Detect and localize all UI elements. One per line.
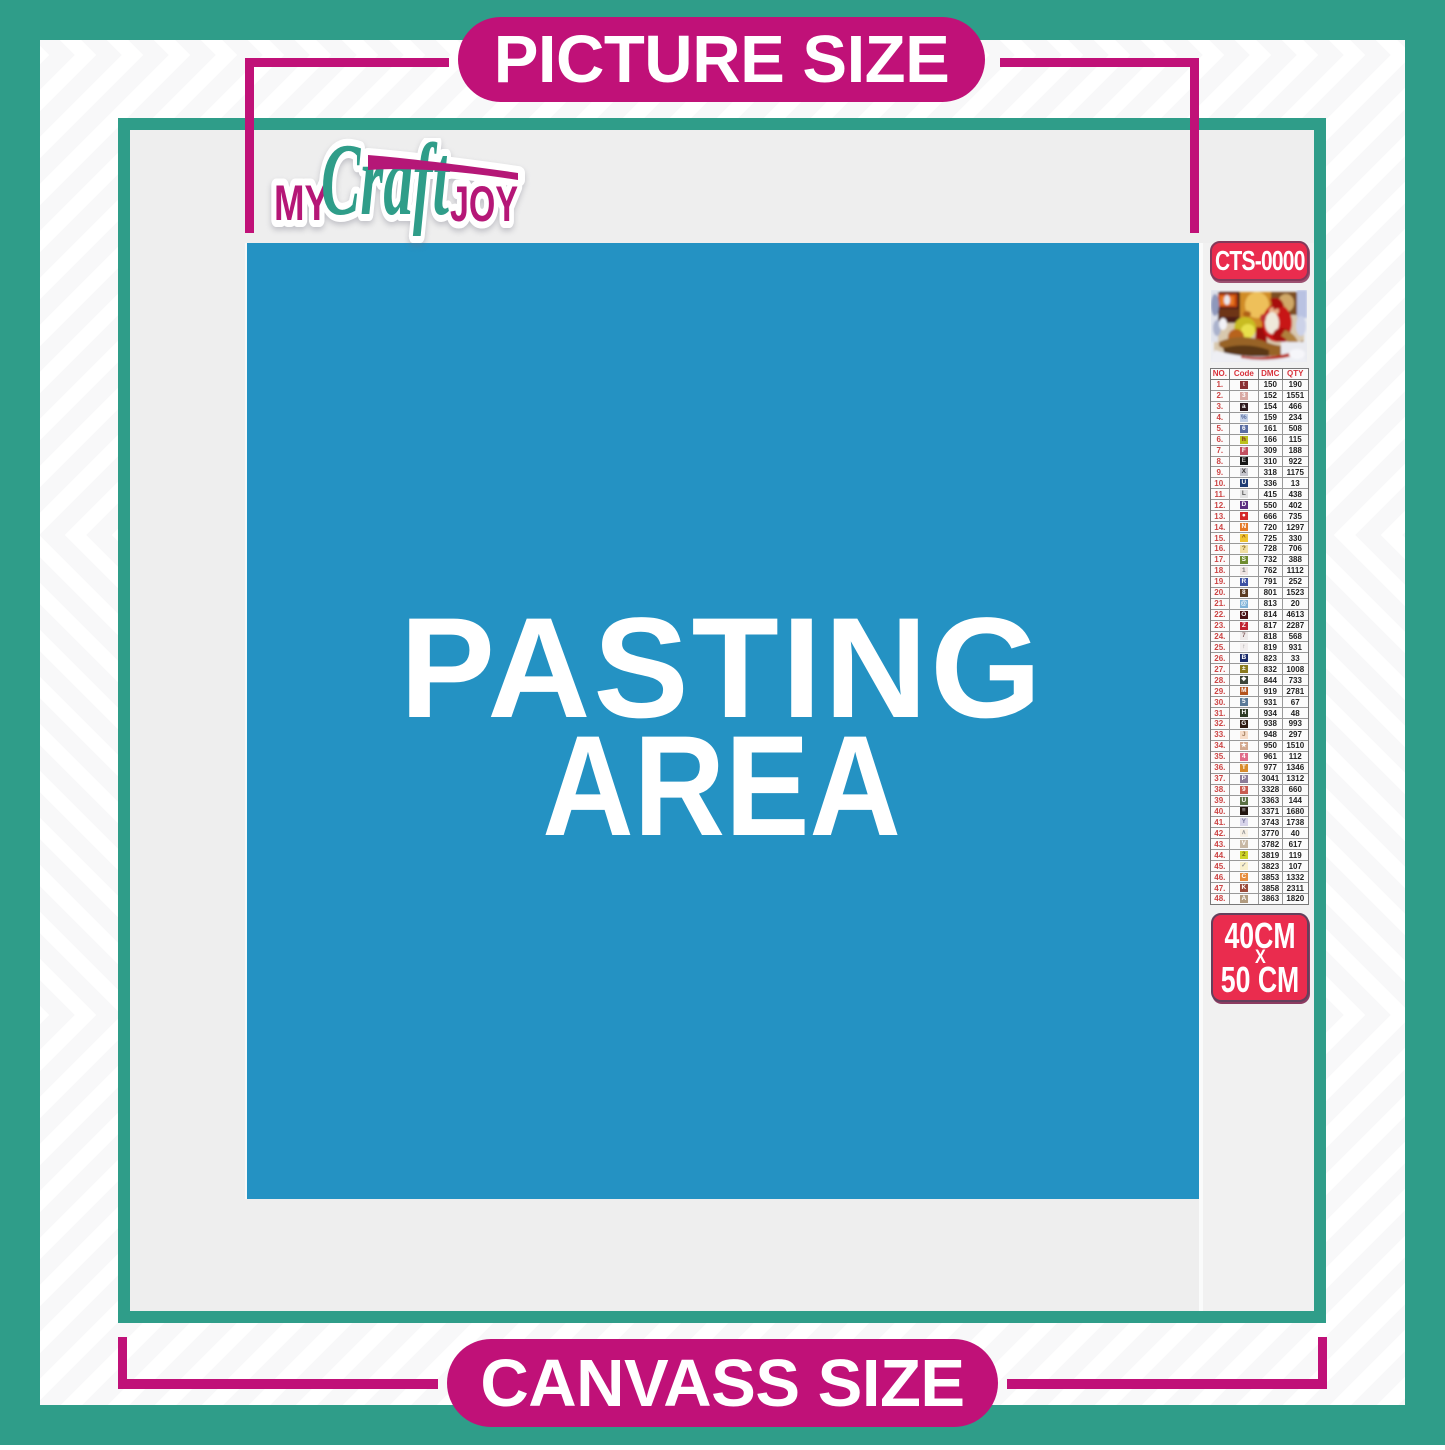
svg-text:Craft: Craft <box>321 138 451 237</box>
svg-text:JOY: JOY <box>450 176 518 232</box>
